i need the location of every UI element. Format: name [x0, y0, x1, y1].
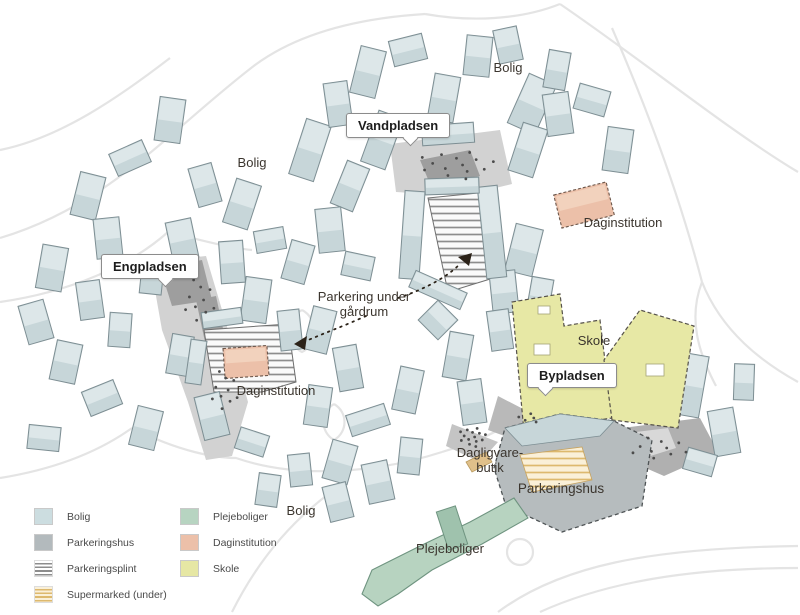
bolig-building-roof [547, 51, 570, 73]
legend: Bolig Parkeringshus Parkeringsplint Supe… [34, 508, 292, 603]
bolig-building-roof [158, 98, 185, 123]
legend-swatch-parkeringshus [34, 534, 53, 551]
tree-dot [650, 450, 653, 453]
bolig-building [49, 340, 83, 385]
tree-dot [204, 311, 207, 314]
bolig-building [392, 366, 425, 414]
skole-courtyard-opening [534, 344, 550, 355]
legend-item-supermarked: Supermarked (under) [34, 586, 146, 603]
bolig-building-roof [110, 313, 131, 331]
roundabout-road [507, 539, 533, 565]
label-daginstitution-east: Daginstitution [584, 215, 663, 230]
legend-label-supermarked: Supermarked (under) [67, 589, 167, 601]
bolig-building [505, 223, 544, 276]
bolig-building-roof [77, 281, 101, 303]
tree-dot [669, 453, 672, 456]
tree-dot [209, 288, 212, 291]
bolig-building-roof [403, 191, 424, 236]
bolig-building [287, 453, 312, 487]
bolig-building [35, 244, 68, 292]
label-dagligvarebutik-line1: Dagligvare- [457, 445, 523, 460]
bolig-building [253, 227, 286, 254]
skole-courtyard-opening [538, 306, 550, 314]
bolig-building [733, 364, 754, 401]
callout-bypladsen-label: Bypladsen [539, 368, 605, 383]
bolig-building [330, 160, 369, 212]
tree-dot [220, 395, 223, 398]
bolig-building-roof [708, 408, 736, 435]
bolig-building [543, 49, 571, 90]
bolig-building-roof [220, 241, 243, 263]
bolig-building-roof [432, 74, 460, 101]
bolig-building-roof [324, 82, 349, 107]
legend-label-parkeringshus: Parkeringshus [67, 537, 134, 549]
legend-item-skole: Skole [180, 560, 292, 577]
bolig-building-roof [40, 245, 67, 271]
tree-dot [211, 398, 214, 401]
bolig-building [129, 405, 164, 450]
tree-dot [199, 286, 202, 289]
tree-dot [218, 370, 221, 373]
bolig-building [75, 280, 104, 321]
bolig-building [602, 126, 634, 173]
bolig-building [486, 309, 513, 352]
callout-vandpladsen: Vandpladsen [346, 113, 450, 138]
bolig-building [493, 26, 524, 64]
tree-dot [184, 308, 187, 311]
tree-dot [473, 436, 476, 439]
tree-dot [447, 174, 450, 177]
tree-dot [423, 169, 426, 172]
tree-dot [647, 437, 650, 440]
road [132, 428, 442, 471]
tree-dot [685, 451, 688, 454]
bolig-building [188, 162, 222, 207]
tree-dot [532, 417, 535, 420]
legend-label-plejeboliger: Plejeboliger [213, 511, 268, 523]
tree-dot [484, 433, 487, 436]
legend-item-parkeringshus: Parkeringshus [34, 534, 146, 551]
bolig-building [70, 172, 106, 221]
tree-dot [468, 151, 471, 154]
tree-dot [431, 162, 434, 165]
callout-engpladsen-label: Engpladsen [113, 259, 187, 274]
bolig-building-roof [530, 278, 553, 299]
label-parkeringshus: Parkeringshus [518, 481, 604, 496]
bolig-building [154, 96, 186, 143]
bolig-building [463, 35, 493, 77]
bolig-building [255, 473, 281, 508]
bolig-building [508, 122, 548, 178]
tree-dot [459, 430, 462, 433]
bolig-building [322, 482, 354, 523]
legend-swatch-bolig [34, 508, 53, 525]
bolig-building [223, 178, 262, 230]
tree-dot [202, 299, 205, 302]
skole-courtyard-opening [646, 364, 664, 376]
label-bolig-northeast: Bolig [494, 60, 523, 75]
legend-swatch-parkeringsplint [34, 560, 53, 577]
tree-dot [478, 432, 481, 435]
tree-dot [232, 379, 235, 382]
bolig-building [399, 190, 425, 279]
tree-dot [677, 441, 680, 444]
bolig-building [240, 276, 272, 323]
tree-dot [529, 412, 532, 415]
callout-vandpladsen-label: Vandpladsen [358, 118, 438, 133]
tree-dot [192, 279, 195, 282]
tree-dot [444, 167, 447, 170]
bolig-building [425, 177, 480, 195]
tree-dot [665, 447, 668, 450]
daginstitution-building-roof [225, 348, 266, 364]
tree-dot [195, 319, 198, 322]
bolig-building [332, 344, 363, 391]
legend-column-1: Bolig Parkeringshus Parkeringsplint Supe… [34, 508, 146, 603]
tree-dot [455, 157, 458, 160]
legend-item-daginstitution: Daginstitution [180, 534, 292, 551]
bolig-building [361, 460, 395, 505]
tree-dot [517, 416, 520, 419]
bolig-building [457, 379, 487, 426]
bolig-building-roof [458, 380, 483, 405]
legend-label-daginstitution: Daginstitution [213, 537, 277, 549]
legend-label-parkeringsplint: Parkeringsplint [67, 563, 136, 575]
tree-dot [461, 164, 464, 167]
bolig-building-roof [258, 474, 280, 493]
tree-dot [660, 440, 663, 443]
bolig-building-roof [400, 438, 422, 458]
bolig-building-roof [94, 218, 120, 240]
label-parkering-under-gaardrum: Parkering under gårdrum [318, 289, 411, 319]
bolig-building [573, 83, 611, 117]
bolig-building [346, 403, 391, 436]
bolig-building-roof [288, 454, 310, 472]
legend-swatch-daginstitution [180, 534, 199, 551]
bolig-building [219, 240, 246, 284]
masterplan-map: Vandpladsen Engpladsen Bypladsen Bolig B… [0, 0, 800, 615]
tree-dot [632, 451, 635, 454]
tree-dot [221, 407, 224, 410]
bolig-building-roof [447, 332, 473, 358]
tree-dot [227, 389, 230, 392]
bolig-building-roof [397, 367, 423, 393]
legend-swatch-skole [180, 560, 199, 577]
tree-dot [224, 377, 227, 380]
bolig-building-roof [735, 365, 754, 384]
tree-dot [460, 439, 463, 442]
tree-dot [652, 457, 655, 460]
tree-dot [466, 170, 469, 173]
road [425, 4, 560, 19]
road [0, 428, 132, 478]
tree-dot [466, 428, 469, 431]
label-plejeboliger: Plejeboliger [416, 541, 484, 556]
bolig-building [542, 91, 574, 136]
tree-dot [481, 439, 484, 442]
label-skole: Skole [578, 333, 611, 348]
tree-dot [188, 296, 191, 299]
label-daginstitution-west: Daginstitution [237, 383, 316, 398]
tree-dot [464, 177, 467, 180]
bolig-building-roof [244, 278, 271, 303]
bolig-building [108, 312, 132, 347]
bolig-building [442, 331, 474, 380]
label-parkering-line2: gårdrum [340, 304, 388, 319]
legend-item-bolig: Bolig [34, 508, 146, 525]
bolig-building-roof [334, 345, 359, 370]
tree-dot [214, 386, 217, 389]
bolig-building [388, 33, 427, 66]
bolig-building [322, 439, 358, 485]
bolig-building [315, 207, 345, 253]
legend-label-skole: Skole [213, 563, 239, 575]
legend-swatch-plejeboliger [180, 508, 199, 525]
tree-dot [212, 307, 215, 310]
callout-engpladsen: Engpladsen [101, 254, 199, 279]
legend-item-parkeringsplint: Parkeringsplint [34, 560, 146, 577]
bolig-building [81, 380, 122, 417]
bolig-building [341, 251, 375, 281]
tree-dot [463, 435, 466, 438]
tree-dot [229, 400, 232, 403]
bolig-building [350, 46, 387, 99]
bolig-building [93, 217, 123, 259]
bolig-building-roof [466, 36, 492, 58]
label-parkering-line1: Parkering under [318, 289, 411, 304]
callout-bypladsen: Bypladsen [527, 363, 617, 388]
tree-dot [475, 158, 478, 161]
bolig-building [109, 140, 152, 177]
label-dagligvarebutik-line2: butik [476, 460, 503, 475]
bolig-building [18, 299, 54, 345]
road [0, 58, 170, 150]
bolig-building-roof [606, 128, 633, 153]
tree-dot [471, 431, 474, 434]
bolig-building-roof [278, 310, 300, 332]
tree-dot [194, 305, 197, 308]
daginstitution-building [223, 346, 269, 379]
bolig-building-roof [316, 208, 342, 232]
bolig-building-roof [487, 310, 510, 333]
tree-dot [639, 445, 642, 448]
tree-dot [535, 421, 538, 424]
bolig-building-roof [543, 93, 570, 117]
bolig-building [234, 427, 269, 457]
legend-label-bolig: Bolig [67, 511, 90, 523]
tree-dot [524, 419, 527, 422]
bolig-building [397, 437, 423, 475]
legend-item-plejeboliger: Plejeboliger [180, 508, 292, 525]
tree-dot [483, 168, 486, 171]
tree-dot [492, 160, 495, 163]
tree-dot [421, 156, 424, 159]
tree-dot [475, 440, 478, 443]
bolig-building [27, 424, 61, 451]
legend-column-2: Plejeboliger Daginstitution Skole [180, 508, 292, 603]
bolig-building [289, 118, 332, 181]
label-bolig-west: Bolig [238, 155, 267, 170]
tree-dot [467, 438, 470, 441]
label-dagligvarebutik: Dagligvare- butik [457, 445, 523, 475]
tree-dot [440, 153, 443, 156]
legend-swatch-supermarked [34, 586, 53, 603]
road [540, 568, 798, 612]
tree-dot [476, 427, 479, 430]
